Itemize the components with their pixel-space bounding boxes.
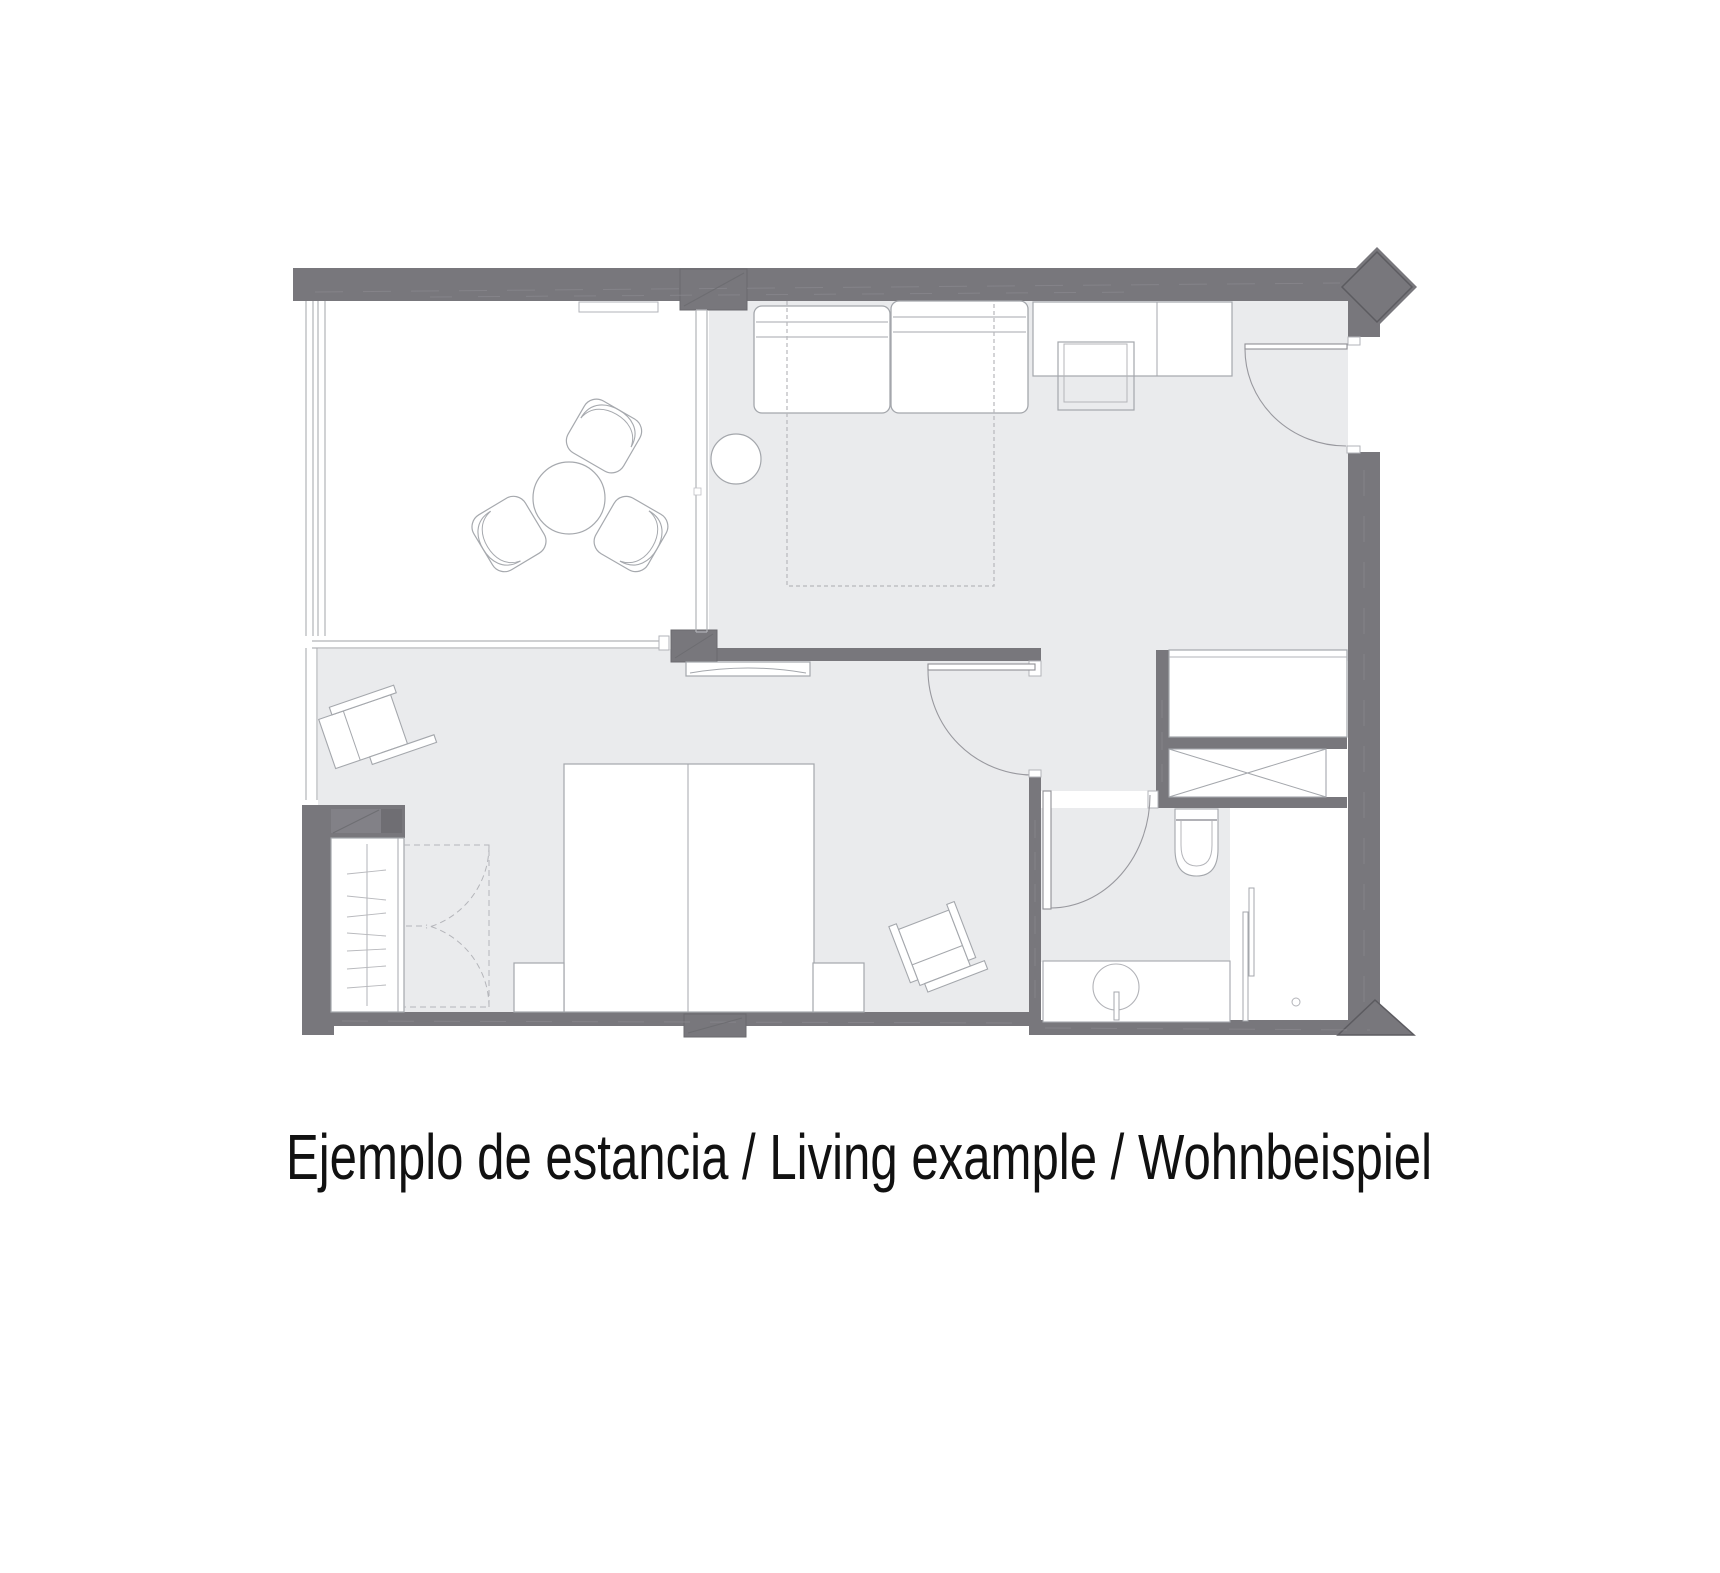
svg-text:Ejemplo de estancia / Living e: Ejemplo de estancia / Living example / W…	[286, 1121, 1432, 1193]
